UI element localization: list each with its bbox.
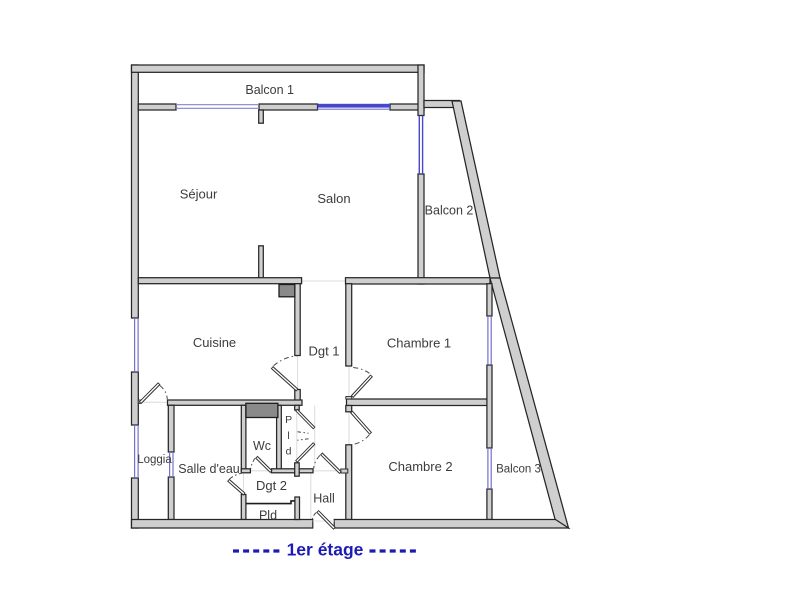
svg-text:Chambre 2: Chambre 2 [388, 459, 452, 474]
svg-text:Chambre 1: Chambre 1 [387, 335, 451, 350]
svg-text:Wc: Wc [253, 439, 271, 453]
svg-text:Dgt 1: Dgt 1 [308, 343, 339, 358]
svg-text:Balcon 2: Balcon 2 [425, 204, 474, 218]
svg-text:Loggia: Loggia [137, 454, 172, 466]
svg-text:1er étage: 1er étage [287, 540, 364, 560]
svg-text:P: P [285, 414, 292, 426]
svg-text:Séjour: Séjour [180, 186, 218, 201]
svg-text:Salle d'eau: Salle d'eau [178, 462, 240, 476]
svg-text:Pld: Pld [259, 509, 277, 523]
svg-text:l: l [287, 430, 289, 442]
svg-text:Balcon 3: Balcon 3 [496, 464, 541, 476]
svg-text:Hall: Hall [313, 491, 335, 505]
svg-text:Salon: Salon [317, 191, 350, 206]
svg-text:Cuisine: Cuisine [193, 335, 236, 350]
svg-text:Balcon 1: Balcon 1 [245, 83, 294, 97]
svg-text:d: d [286, 446, 292, 458]
svg-text:Dgt 2: Dgt 2 [256, 478, 287, 493]
